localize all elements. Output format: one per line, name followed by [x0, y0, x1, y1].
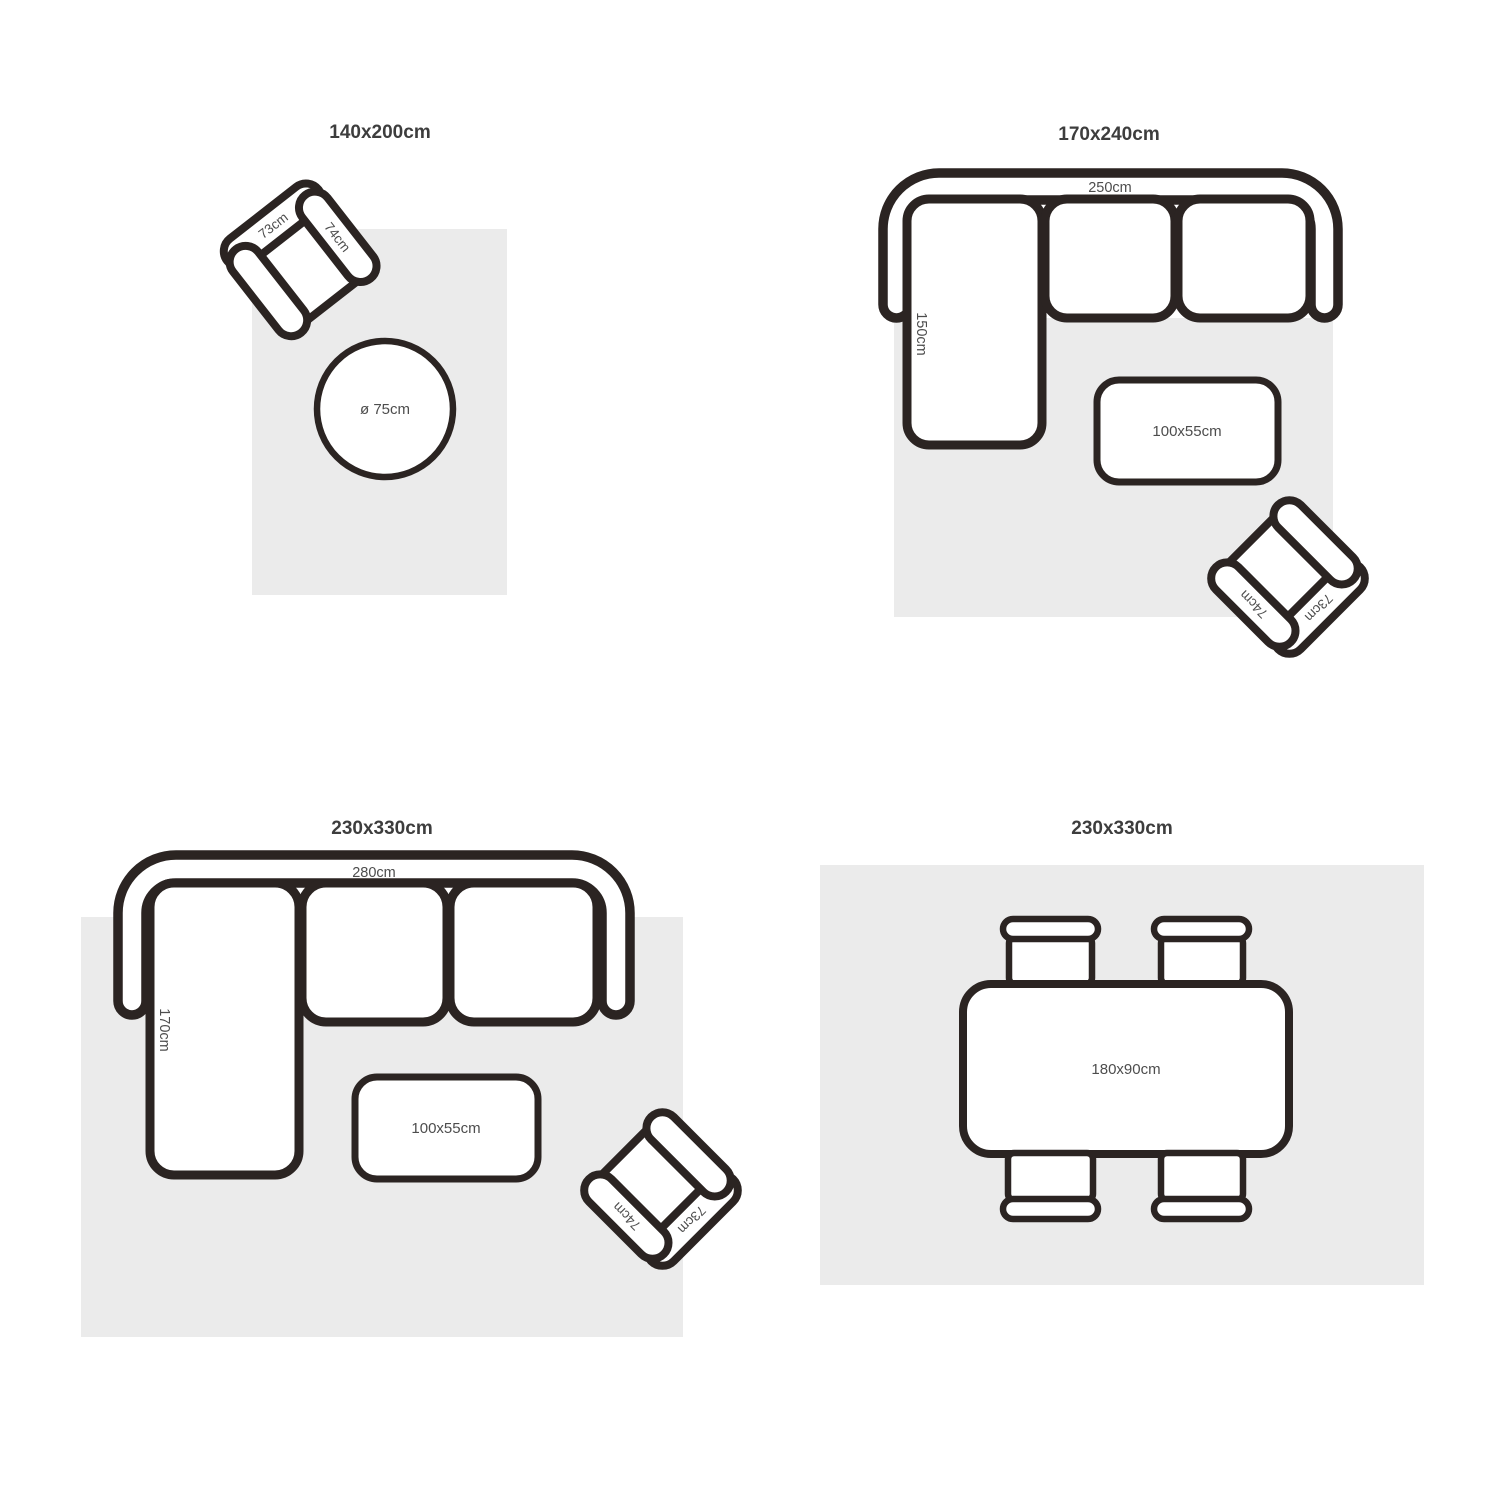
- dining-chair-seat: [1008, 1153, 1093, 1200]
- sofa-cushion-middle: [1045, 199, 1175, 318]
- quadrant-title: 140x200cm: [329, 122, 430, 143]
- dining-chair-back: [1154, 1199, 1249, 1219]
- quadrant-title: 170x240cm: [1058, 124, 1159, 145]
- dining-chair-bottom-right: [1154, 1153, 1249, 1219]
- quadrant-title: 230x330cm: [331, 818, 432, 839]
- dining-chair-seat: [1009, 937, 1092, 984]
- dining-chair-top-left: [1003, 919, 1098, 984]
- quadrant-170x240: 170x240cm 250cm 150cm 100x55cm 73cm 74cm: [883, 124, 1373, 662]
- sofa-cushion-middle: [302, 883, 447, 1022]
- sofa-width-label: 280cm: [352, 865, 396, 881]
- sofa-depth-label: 170cm: [156, 1008, 172, 1052]
- dining-chair-bottom-left: [1003, 1153, 1098, 1219]
- sofa-width-label: 250cm: [1088, 180, 1132, 196]
- coffee-table-label: 100x55cm: [411, 1120, 480, 1137]
- sofa-cushion-right: [450, 883, 597, 1022]
- rug-size-guide: 140x200cm ø 75cm 73cm 74cm 170x240cm 250…: [0, 0, 1500, 1500]
- dining-chair-back: [1154, 919, 1249, 939]
- sofa-depth-label: 150cm: [913, 312, 929, 356]
- round-table-label: ø 75cm: [360, 401, 410, 418]
- size-guide-diagram: 140x200cm ø 75cm 73cm 74cm 170x240cm 250…: [0, 0, 1500, 1500]
- dining-chair-back: [1003, 919, 1098, 939]
- dining-chair-top-right: [1154, 919, 1249, 984]
- dining-chair-back: [1003, 1199, 1098, 1219]
- quadrant-140x200: 140x200cm ø 75cm 73cm 74cm: [216, 122, 507, 595]
- quadrant-230x330-sofa: 230x330cm 280cm 170cm 100x55cm 73cm 74cm: [81, 818, 746, 1337]
- quadrant-230x330-dining: 230x330cm 180x90cm: [820, 818, 1424, 1285]
- dining-table-label: 180x90cm: [1091, 1061, 1160, 1078]
- quadrant-title: 230x330cm: [1071, 818, 1172, 839]
- dining-chair-seat: [1161, 937, 1243, 984]
- dining-chair-seat: [1161, 1153, 1243, 1200]
- coffee-table-label: 100x55cm: [1152, 423, 1221, 440]
- sofa-cushion-right: [1178, 199, 1310, 318]
